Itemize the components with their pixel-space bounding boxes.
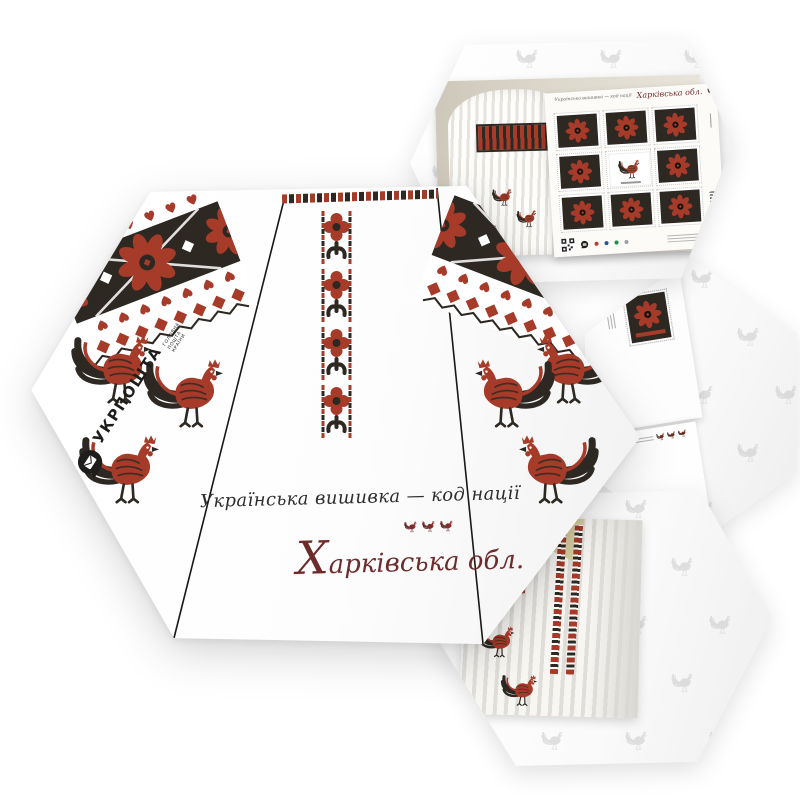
flower-stamp-icon [664,152,692,180]
sheet-region: Харківська обл. [636,87,702,100]
sheet-margin [705,109,722,217]
stamp-pattern [651,104,699,145]
rooster-watermark-icon [730,104,735,128]
rooster-watermark-icon [516,46,540,70]
stamp-pattern [654,145,702,186]
rooster-watermark-icon [432,46,456,70]
flower-stamp-icon [662,111,690,139]
rooster-watermark-icon [730,220,735,244]
rooster-watermark-icon [737,440,761,464]
rooster-watermark-icon [410,104,418,128]
packaging-product-photo: Українська вишивка — код нації Харківськ… [0,0,800,800]
sheet-tagline: Українська вишивка — код нації [555,93,632,103]
rooster-icon [718,86,728,96]
stamp-pattern [656,186,704,227]
rooster-icon [677,428,687,438]
rooster-watermark-icon [435,670,443,694]
rooster-watermark-icon [737,324,761,348]
rooster-watermark-icon [775,382,797,406]
rooster-watermark-icon [684,278,708,286]
region-title: Харківська обл. [229,524,590,586]
flower-stamp-icon [613,114,641,142]
rooster-watermark-icon [600,46,624,70]
sheet-header-roosters [707,85,735,96]
insert-card-roosters [656,428,688,442]
rooster-icon [656,431,666,441]
packaging-front-face: УКРПОШТА ГОЛОВНА ПОШТА КРАЇНИ Українська… [30,185,640,645]
rooster-watermark-icon [709,612,733,636]
center-embroidery-strip [321,209,352,441]
stamp-sheet-header: Українська вишивка — код нації Харківськ… [554,87,708,105]
rooster-watermark-icon [625,728,649,752]
rooster-icon [468,347,556,435]
rooster-icon [617,155,642,180]
rooster-watermark-icon [755,670,775,694]
stamp-pattern [553,110,601,151]
rooster-icon [729,85,735,95]
rooster-watermark-icon [457,728,481,752]
rooster-icon [707,86,717,96]
rooster-watermark-icon [709,728,733,752]
rooster-watermark-icon [755,554,775,578]
rooster-watermark-icon [684,46,708,70]
stamp-pattern [602,107,650,148]
rooster-watermark-icon [709,496,733,520]
rooster-icon [667,430,677,440]
flower-stamp-icon [667,193,695,221]
rooster-watermark-icon [671,554,695,578]
stamp-rooster [605,148,653,189]
flower-stamp-icon [566,158,594,186]
sheet-imprint-lines [667,231,720,245]
packaging-front-panel: УКРПОШТА ГОЛОВНА ПОШТА КРАЇНИ Українська… [30,185,640,645]
rooster-icon [500,669,541,710]
barcode [710,191,720,217]
flower-stamp-icon [564,117,592,145]
rooster-watermark-icon [671,670,695,694]
rooster-watermark-icon [775,498,797,522]
rooster-watermark-icon [541,728,565,752]
rooster-watermark-icon [775,266,797,290]
